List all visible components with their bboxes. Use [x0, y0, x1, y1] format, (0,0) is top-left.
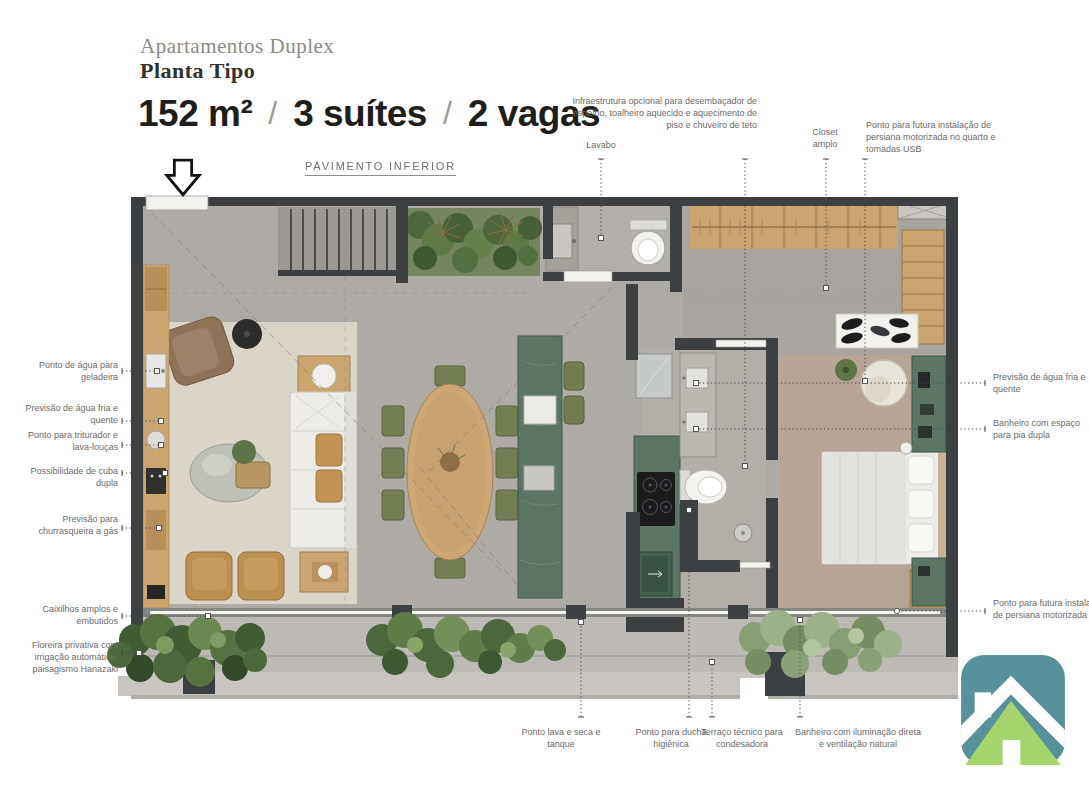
callout-triturador: Ponto para triturador e lava-louças — [8, 430, 118, 454]
callout-agua-fria-quente-suite: Previsão de água fria e quente — [993, 372, 1089, 396]
callout-persiana-motorizada: Ponto para futura instalação de persiana… — [993, 598, 1089, 622]
spec-separator: / — [268, 95, 277, 132]
callout-floreira: Floreira privativa com irrigação automát… — [0, 640, 118, 676]
staircase — [278, 207, 398, 276]
callout-cuba-dupla: Possibilidade de cuba dupla — [8, 466, 118, 490]
stool — [564, 396, 584, 424]
floor-plan-page: Apartamentos Duplex Planta Tipo 152 m² /… — [0, 0, 1089, 789]
sofa — [290, 392, 356, 548]
entry-arrow-icon — [163, 158, 203, 198]
callout-lavabo: Lavabo — [566, 140, 636, 152]
bed — [822, 450, 946, 566]
vanity-2 — [912, 558, 946, 606]
island-sink — [524, 396, 556, 424]
callout-infraestrutura: Infraestrutura opcional para desembaçado… — [557, 96, 757, 132]
callout-lava-seca: Ponto lava e seca e tanque — [516, 727, 606, 751]
spec-separator: / — [443, 95, 452, 132]
top-planter — [406, 208, 542, 276]
brand-house-logo — [961, 655, 1065, 765]
callout-terraco-tecnico: Terraço técnico para condesadora — [697, 727, 787, 751]
spec-area: 152 m² — [138, 93, 252, 135]
plant — [232, 440, 256, 464]
callout-pia-dupla: Banheiro com espaço para pia dupla — [993, 418, 1083, 442]
bathroom-door — [740, 562, 770, 568]
living-area — [160, 314, 357, 604]
floor-label: PAVIMENTO INFERIOR — [305, 160, 456, 176]
specs-row: 152 m² / 3 suítes / 2 vagas — [138, 93, 600, 135]
callout-agua-geladeira: Ponto de água para geladeira — [8, 360, 118, 384]
spec-suites: 3 suítes — [293, 93, 427, 135]
page-subtitle: Planta Tipo — [140, 58, 255, 84]
callout-persiana-usb: Ponto para futura instalação de persiana… — [866, 120, 998, 156]
callout-caixilhos: Caixilhos amplos e embutidos — [18, 604, 118, 628]
stool — [564, 362, 584, 390]
bedroom-door — [716, 340, 766, 347]
lavabo-door — [564, 271, 612, 282]
callout-banheiro-ventilacao: Banheiro com iluminação direta e ventila… — [793, 727, 923, 751]
entry-door — [146, 196, 208, 210]
callout-agua-fria-quente: Previsão de água fria e quente — [8, 403, 118, 427]
callout-churrasqueira: Previsão para churrasqueira a gás — [8, 514, 118, 538]
toilet-tank — [630, 220, 667, 230]
callout-closet: Closet amplo — [800, 127, 850, 151]
page-title: Apartamentos Duplex — [140, 34, 334, 59]
